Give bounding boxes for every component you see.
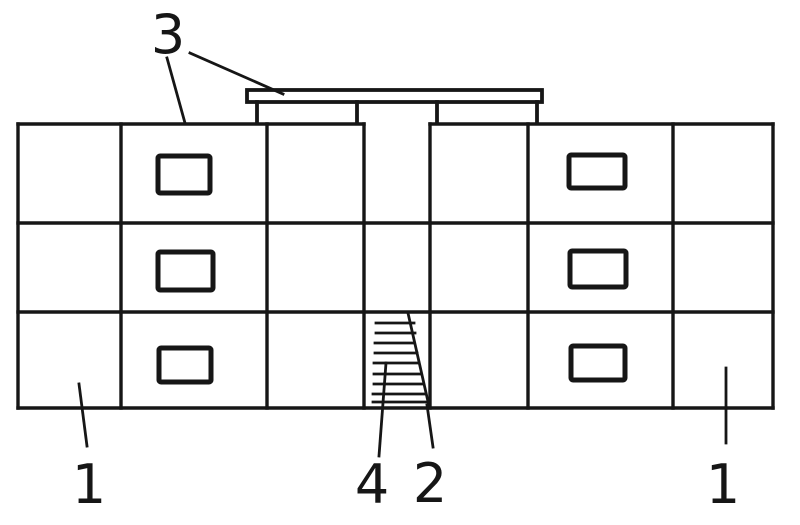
windows-right-bay — [569, 155, 626, 380]
window — [159, 348, 211, 382]
window — [570, 251, 626, 287]
building-facade-outline — [18, 124, 773, 408]
ref-numeral-2: 2 — [413, 452, 447, 515]
ref-numeral-1-right: 1 — [706, 453, 740, 516]
roof-canopy — [247, 90, 542, 123]
window — [158, 252, 213, 290]
stair-stringer-diagonal — [408, 313, 429, 406]
roof-support-left — [257, 102, 357, 123]
window — [158, 156, 210, 193]
roof-support-right — [437, 102, 537, 123]
leader-line-ref3-to-facade — [167, 58, 185, 123]
building-elevation-drawing: 3 1 4 2 1 — [0, 0, 800, 525]
facade-grid-lines — [18, 124, 773, 408]
window — [571, 346, 625, 380]
windows-left-bay — [158, 156, 213, 382]
leader-line-ref1-left — [79, 384, 87, 446]
patent-figure-canvas: 3 1 4 2 1 — [0, 0, 800, 525]
leader-line-ref3-to-canopy — [190, 53, 283, 94]
staircase-hatch — [373, 313, 429, 406]
roof-canopy-slab — [247, 90, 542, 102]
ref-numeral-1-left: 1 — [72, 453, 106, 516]
ref-numeral-4: 4 — [355, 453, 389, 516]
ref-numeral-3: 3 — [151, 3, 185, 66]
leader-line-ref2 — [427, 405, 433, 447]
window — [569, 155, 625, 188]
